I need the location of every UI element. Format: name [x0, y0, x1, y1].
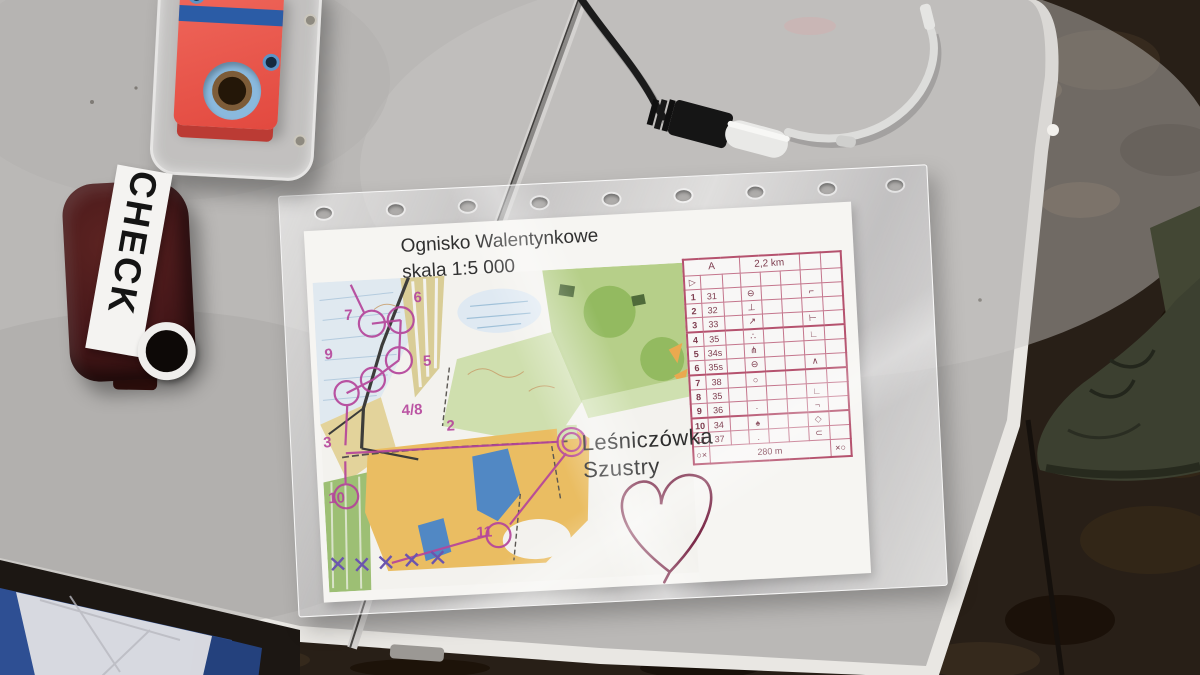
location-line1: Leśniczówka [581, 423, 714, 457]
map-scale: skala 1:5 000 [401, 249, 600, 285]
course-number: 9 [324, 346, 333, 363]
heart-drawing [589, 464, 745, 588]
orienteering-map: 7 6 9 5 4/8 3 2 10 11 [313, 263, 699, 593]
si-blue-stripe [179, 5, 284, 26]
map-sheet: Ognisko Walentynkowe skala 1:5 000 [304, 202, 871, 603]
screw-icon [262, 53, 280, 71]
course-number: 2 [446, 417, 455, 434]
map-title: Ognisko Walentynkowe [400, 223, 599, 259]
si-station-body [173, 0, 284, 130]
course-number: 5 [423, 353, 432, 370]
course-number: 4/8 [401, 401, 423, 419]
course-number: 3 [323, 434, 332, 451]
start-symbol: ▷ [684, 275, 701, 290]
course-number: 6 [413, 289, 422, 306]
finish-symbol: ×○ [830, 438, 852, 457]
map-graphic [313, 263, 699, 593]
scene: CHECK Ognisko Walentynkowe skala 1:5 000 [0, 0, 1200, 675]
location-label: Leśniczówka Szustry [581, 423, 715, 484]
plastic-sleeve: Ognisko Walentynkowe skala 1:5 000 [278, 164, 948, 617]
out-of-bounds-marks [331, 551, 444, 572]
course-number: 10 [328, 489, 346, 507]
control-descriptions: A 2,2 km ▷ 131⊖⌐ 232⊥ 333↗⊢ 435∴∟ 534s⋔ … [682, 250, 853, 465]
course-length: 2,2 km [739, 253, 800, 273]
check-station: CHECK [61, 179, 197, 383]
punch-hole-icon [202, 60, 263, 121]
map-header: Ognisko Walentynkowe skala 1:5 000 [400, 223, 600, 285]
finish-symbol: ○× [693, 446, 710, 464]
location-line2: Szustry [582, 450, 715, 484]
screw-icon [188, 0, 206, 4]
course-number: 7 [344, 307, 353, 324]
punch-hole-center [211, 70, 253, 112]
course-overprint [323, 273, 592, 566]
si-station [155, 0, 317, 176]
course-number: 11 [476, 523, 493, 541]
finish-distance: 280 m [709, 440, 831, 464]
course-name: A [683, 257, 740, 277]
